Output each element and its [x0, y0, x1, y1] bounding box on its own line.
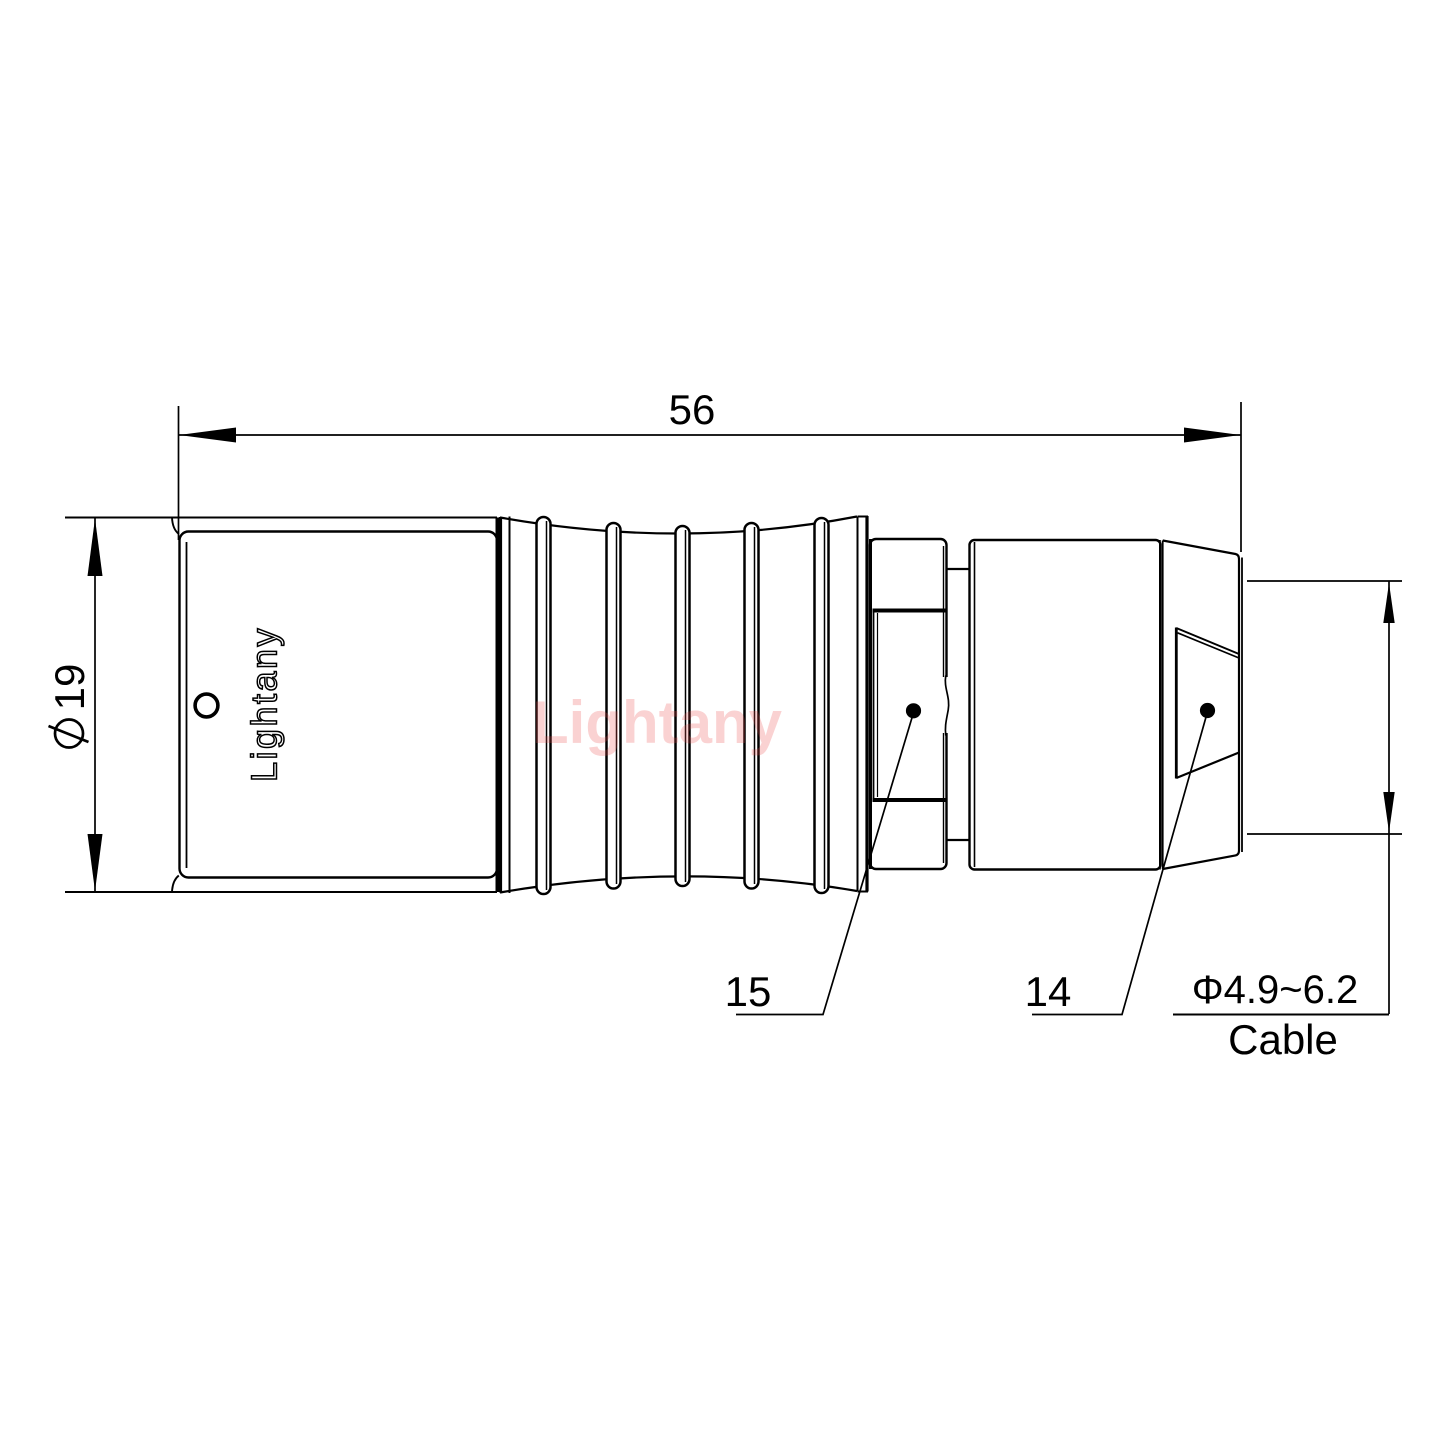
svg-text:15: 15 — [725, 968, 772, 1015]
svg-text:Lightany: Lightany — [532, 689, 783, 756]
svg-text:19: 19 — [46, 664, 93, 711]
svg-text:Φ4.9~6.2: Φ4.9~6.2 — [1192, 968, 1358, 1012]
svg-text:Cable: Cable — [1228, 1016, 1338, 1063]
svg-text:14: 14 — [1025, 968, 1072, 1015]
svg-text:56: 56 — [669, 386, 716, 433]
svg-text:Lightany: Lightany — [244, 626, 285, 782]
